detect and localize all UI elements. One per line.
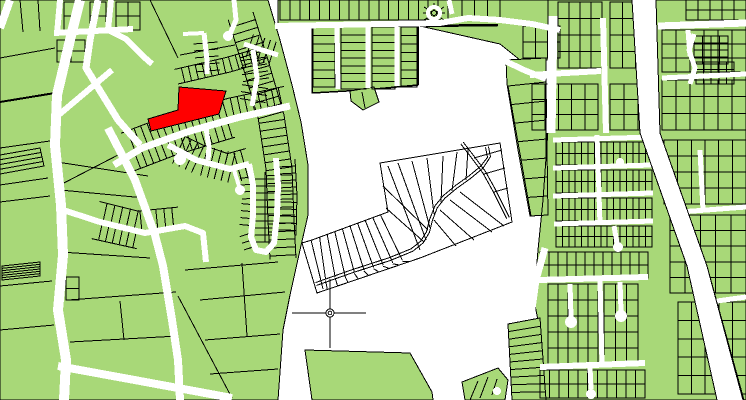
road <box>108 0 111 30</box>
road <box>206 128 209 160</box>
culdesac-bulb <box>174 153 186 165</box>
crosshair-center-ring <box>326 309 334 317</box>
road <box>57 0 60 34</box>
road <box>337 27 338 89</box>
mini-loop-center <box>432 11 437 16</box>
road <box>658 23 746 26</box>
road <box>700 150 703 210</box>
culdesac-bulb <box>616 158 624 166</box>
map-canvas[interactable] <box>0 0 746 400</box>
culdesac-bulb <box>235 185 245 195</box>
road <box>554 221 653 224</box>
road <box>597 135 600 224</box>
road <box>614 226 617 243</box>
road <box>553 137 652 140</box>
road <box>538 277 648 280</box>
road <box>553 165 652 168</box>
road <box>530 71 601 75</box>
fan-bulb <box>493 387 501 395</box>
culdesac-bulb <box>615 310 627 322</box>
road <box>590 367 591 389</box>
culdesac-bulb <box>613 242 623 252</box>
road <box>570 284 571 317</box>
road <box>553 193 653 196</box>
map-window <box>0 0 746 400</box>
road <box>600 280 602 365</box>
culdesac-bulb <box>223 31 233 41</box>
road <box>183 33 204 34</box>
road <box>689 34 695 84</box>
culdesac-bulb <box>586 389 596 399</box>
road <box>603 18 606 133</box>
road <box>540 363 645 367</box>
road <box>449 0 452 14</box>
road <box>620 282 621 311</box>
culdesac-bulb <box>565 316 577 328</box>
